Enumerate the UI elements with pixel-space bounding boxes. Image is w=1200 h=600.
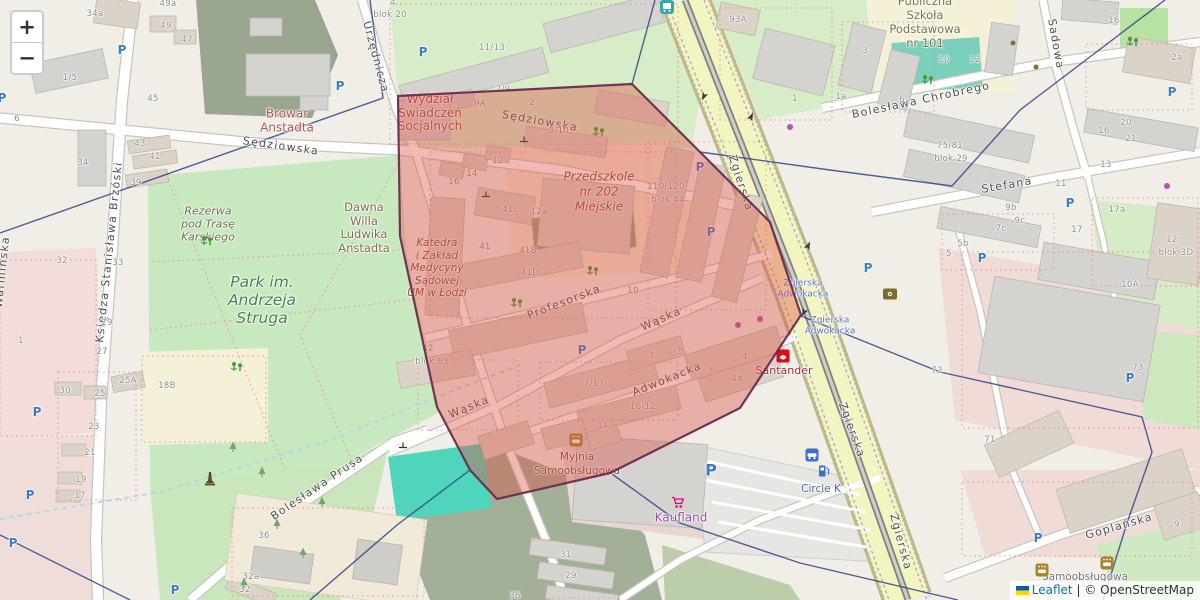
playground-icon [510, 297, 524, 309]
house-number: 6 [14, 114, 20, 124]
house-number: 27 [96, 347, 107, 357]
zoom-out-button[interactable]: − [12, 43, 42, 73]
house-number: 12a [531, 207, 548, 217]
shop-dot-icon [757, 316, 764, 323]
gate-icon [520, 136, 529, 143]
parking-icon: P [0, 91, 6, 105]
carwash-icon [570, 434, 583, 447]
house-number: 8/10 [549, 126, 569, 136]
parking-icon: P [9, 536, 18, 550]
parking-icon: P [419, 45, 428, 59]
house-number: 10A [1121, 280, 1139, 290]
shop-dot-icon [1164, 183, 1171, 190]
house-number: 36 [509, 591, 520, 600]
parking-icon: P [1126, 371, 1135, 385]
circlek-car-icon [806, 449, 819, 462]
shop-dot-icon [735, 322, 742, 329]
poi-label-przedszkole: Przedszkolenr 202Miejskie [563, 170, 634, 215]
house-number: 5b [957, 239, 968, 249]
house-number: 17a [1109, 205, 1126, 215]
parking-icon: P [696, 160, 705, 174]
cafe-dot-icon [1033, 64, 1039, 70]
parking-icon: P [707, 225, 716, 239]
house-number: 1 [792, 94, 798, 104]
tree-icon [299, 548, 308, 559]
house-number: 32 [56, 256, 67, 266]
street-label: Adwokacka [630, 359, 703, 399]
parking-icon: P [1066, 196, 1075, 210]
carwash-icon [1036, 564, 1049, 577]
house-number: 75/81 [937, 141, 963, 151]
house-number: 21 [1125, 134, 1136, 144]
house-number: 93A [729, 15, 747, 25]
house-number: 47 [181, 35, 192, 45]
poi-label-browar: BrowarAnstadta [260, 108, 314, 135]
poi-label-szkola-101: PublicznaSzkołaPodstawowanr 101 [889, 0, 960, 50]
playground-icon [921, 74, 935, 86]
transit-stop-icon [660, 0, 674, 14]
house-number: 7c [996, 224, 1007, 234]
house-number: 9c [1015, 216, 1026, 226]
house-number: 14 [466, 169, 477, 179]
house-number: 7/9 [496, 85, 511, 95]
arrow-icon [744, 110, 757, 123]
street-label: Profesorska [525, 282, 603, 322]
house-number: 12 [492, 156, 503, 166]
street-label: Urzędnicza [360, 20, 392, 95]
house-number: blok 3D [1159, 248, 1194, 258]
parking-icon: P [978, 251, 987, 265]
tree-icon [240, 578, 249, 589]
house-number: 21 [84, 448, 95, 458]
parking-icon: P [1168, 85, 1177, 99]
house-number: 18B [158, 381, 176, 391]
street-label: Goplańska [1084, 510, 1154, 542]
house-number: 41 [479, 242, 490, 252]
map-labels-layer: SędziowskaSędziowskaUrzędniczaZgierskaZg… [0, 0, 1200, 600]
poi-label-wydzial: WydziałŚwiadczeńSocjalnych [398, 93, 463, 134]
house-number: 10 [627, 286, 638, 296]
house-number: 12 [969, 55, 980, 65]
transit-stop-label: ZgierskaAdwokacka [778, 279, 829, 300]
house-number: 5 [946, 249, 952, 259]
monument-icon [205, 472, 215, 486]
house-number: 71 [984, 435, 995, 445]
house-number: blok 63 [415, 357, 449, 367]
arrow-icon [697, 89, 710, 102]
house-number: 7 [649, 352, 655, 362]
playground-icon [1126, 36, 1140, 48]
gate-icon [482, 191, 491, 198]
house-number: 25A [119, 376, 137, 386]
house-number: 4a [731, 374, 742, 384]
house-number: 4 [390, 0, 396, 8]
house-number: 16 [1098, 126, 1109, 136]
zoom-in-button[interactable]: + [12, 12, 42, 43]
house-number: 29 [565, 571, 576, 581]
street-label: Wąska [447, 393, 492, 421]
house-number: 41C [502, 205, 520, 215]
house-number: 17 [74, 491, 85, 501]
house-number: blok 29 [934, 154, 968, 164]
street-label: Stefana [981, 174, 1034, 196]
house-number: 1 [18, 336, 24, 346]
shop-dot-icon [787, 124, 794, 131]
house-number: 31 [560, 550, 571, 560]
house-number: 6 [899, 95, 905, 105]
fuel-pump-icon [818, 465, 830, 478]
house-number: 7/13 [584, 379, 604, 389]
map-viewport[interactable]: SędziowskaSędziowskaUrzędniczaZgierskaZg… [0, 0, 1200, 600]
house-number: 6 [709, 366, 715, 376]
street-label: Bolesława Prusa [268, 451, 366, 523]
tree-icon [318, 497, 327, 508]
tree-icon [258, 467, 267, 478]
house-number: 30 [59, 386, 70, 396]
house-number: 2a [1171, 53, 1182, 63]
attribution-bar: Leaflet | © OpenStreetMap [1010, 581, 1200, 600]
poi-label-myjnia: MyjniaSamoobsługowa [534, 450, 620, 478]
house-number: 3 [862, 46, 868, 56]
parking-icon: P [171, 583, 180, 597]
ukraine-flag-icon [1016, 586, 1029, 595]
attribution-separator: | [1076, 583, 1080, 597]
street-label: Sadowa [1045, 18, 1067, 70]
parking-icon: P [336, 79, 345, 93]
house-number: 1a [835, 92, 846, 102]
tree-icon [229, 442, 238, 453]
house-number: 41D [521, 268, 539, 278]
house-number: 49a [160, 0, 177, 9]
parking-icon: P [864, 261, 873, 275]
house-number: 9A [474, 99, 486, 109]
parking-icon: P [33, 405, 42, 419]
house-number: 39 [130, 178, 141, 188]
tree-icon [273, 519, 282, 530]
poi-box-icon [883, 289, 897, 300]
house-number: 33 [112, 258, 123, 268]
house-number: blok 20 [373, 10, 407, 20]
arrow-icon [801, 239, 814, 252]
house-number: 16 [448, 177, 459, 187]
house-number: 19 [75, 475, 86, 485]
house-number: 25 [94, 389, 105, 399]
house-number: 29 [101, 318, 112, 328]
house-number: 16 [1108, 16, 1119, 26]
street-label: Warmińska [0, 235, 12, 308]
house-number: 41 [149, 152, 160, 162]
house-number: 41B [519, 246, 537, 256]
house-number: 12 [1166, 235, 1177, 245]
carwash-icon [1101, 557, 1114, 570]
house-number: 4 [742, 352, 748, 362]
parking-icon: P [26, 488, 35, 502]
house-number: 42 [422, 344, 433, 354]
house-number: 34a [87, 9, 104, 19]
house-number: 49 [160, 21, 171, 31]
osm-link[interactable]: © OpenStreetMap [1084, 583, 1194, 597]
house-number: 34 [77, 158, 88, 168]
house-number: 14 [597, 421, 608, 431]
poi-label-park-struga: Park im.AndrzejaStruga [228, 273, 296, 327]
parking-icon: P [705, 461, 717, 480]
poi-label-circle-k: Circle K [801, 483, 841, 495]
street-label: Zgierska [726, 153, 756, 212]
parking-icon: P [578, 343, 587, 357]
gate-icon [399, 442, 408, 449]
house-number: 5 [678, 347, 684, 357]
kaufland-cart-icon [671, 497, 685, 510]
poi-label-kaufland: Kaufland [655, 512, 708, 525]
house-number: 2 [529, 98, 535, 108]
house-number: 11 [1055, 179, 1066, 189]
playground-icon [230, 361, 244, 373]
house-number: blok 44 [651, 195, 685, 205]
street-label: Zgierska [887, 512, 915, 571]
playground-icon [592, 126, 606, 138]
poi-label-dawna-willa: DawnaWillaLudwikaAnstadta [338, 201, 390, 255]
house-number: 43 [134, 139, 145, 149]
house-number: 10/12 [630, 402, 656, 412]
house-number: 73 [931, 366, 942, 376]
transit-stop-label: ZgierskaAdwokacka [805, 316, 856, 337]
house-number: 1/5 [63, 73, 78, 83]
house-number: 110/120 [647, 182, 684, 192]
house-number: 36 [258, 531, 269, 541]
house-number: 9b [1005, 203, 1016, 213]
street-label: Sędziowska [242, 134, 320, 158]
house-number: 20 [1120, 118, 1131, 128]
house-number: 10 [938, 55, 949, 65]
house-number: 9 [1174, 520, 1180, 530]
parking-icon: P [118, 43, 127, 57]
leaflet-link[interactable]: Leaflet [1032, 583, 1073, 597]
house-number: 23 [88, 422, 99, 432]
house-number: 13 [1100, 160, 1111, 170]
street-label: Wąska [639, 304, 683, 333]
street-label: Księdza Stanisława Brzóski [93, 161, 125, 344]
zoom-control: + − [10, 10, 44, 75]
poi-label-katedra: Katedrai ZakładMedycynySądowejUM w Łodzi [407, 237, 466, 300]
playground-icon [200, 235, 214, 247]
poi-label-santander: Santander [756, 365, 813, 377]
parking-icon: P [1034, 531, 1043, 545]
playground-icon [586, 265, 600, 277]
house-number: 11/13 [479, 43, 505, 53]
house-number: 45 [147, 94, 158, 104]
street-label: Zgierska [836, 401, 868, 460]
santander-logo-icon [777, 350, 790, 363]
cafe-dot-icon [1010, 40, 1016, 46]
house-number: 17 [1071, 225, 1082, 235]
